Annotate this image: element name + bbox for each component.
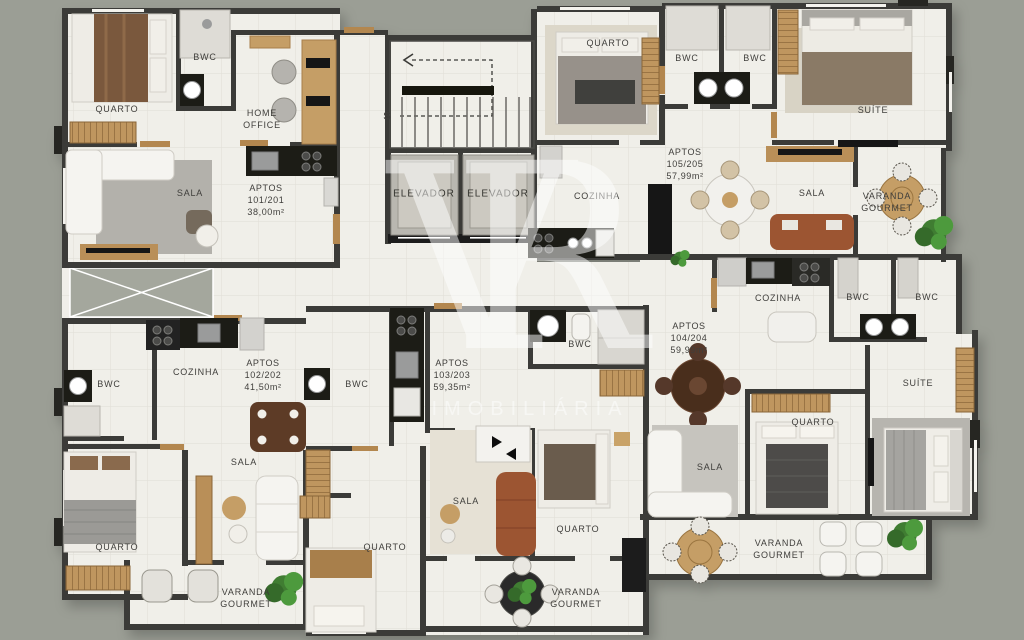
living-room xyxy=(648,425,738,517)
bed-bottom xyxy=(306,548,376,632)
wardrobe-2 xyxy=(300,496,330,518)
floor-plan-page: QUARTO BWC HOME OFFICE SALA APTOS 101/20… xyxy=(0,0,1024,640)
bed xyxy=(64,452,136,552)
elevator-right xyxy=(463,155,534,235)
handrail xyxy=(402,86,494,95)
living-room xyxy=(430,426,536,556)
bed-quarto xyxy=(752,394,838,514)
hatched-shaft xyxy=(70,268,213,317)
kitchen xyxy=(146,318,264,350)
building xyxy=(54,0,980,636)
ac-closet xyxy=(622,538,646,592)
dining-table xyxy=(250,402,306,452)
floor-plan-drawing xyxy=(0,0,1024,640)
bed-quarto xyxy=(545,25,659,135)
wardrobe xyxy=(66,566,130,590)
bed xyxy=(72,14,172,102)
wardrobe xyxy=(70,122,136,143)
elevator-left xyxy=(391,155,458,235)
wardrobe xyxy=(600,370,644,396)
kitchen xyxy=(390,308,424,422)
